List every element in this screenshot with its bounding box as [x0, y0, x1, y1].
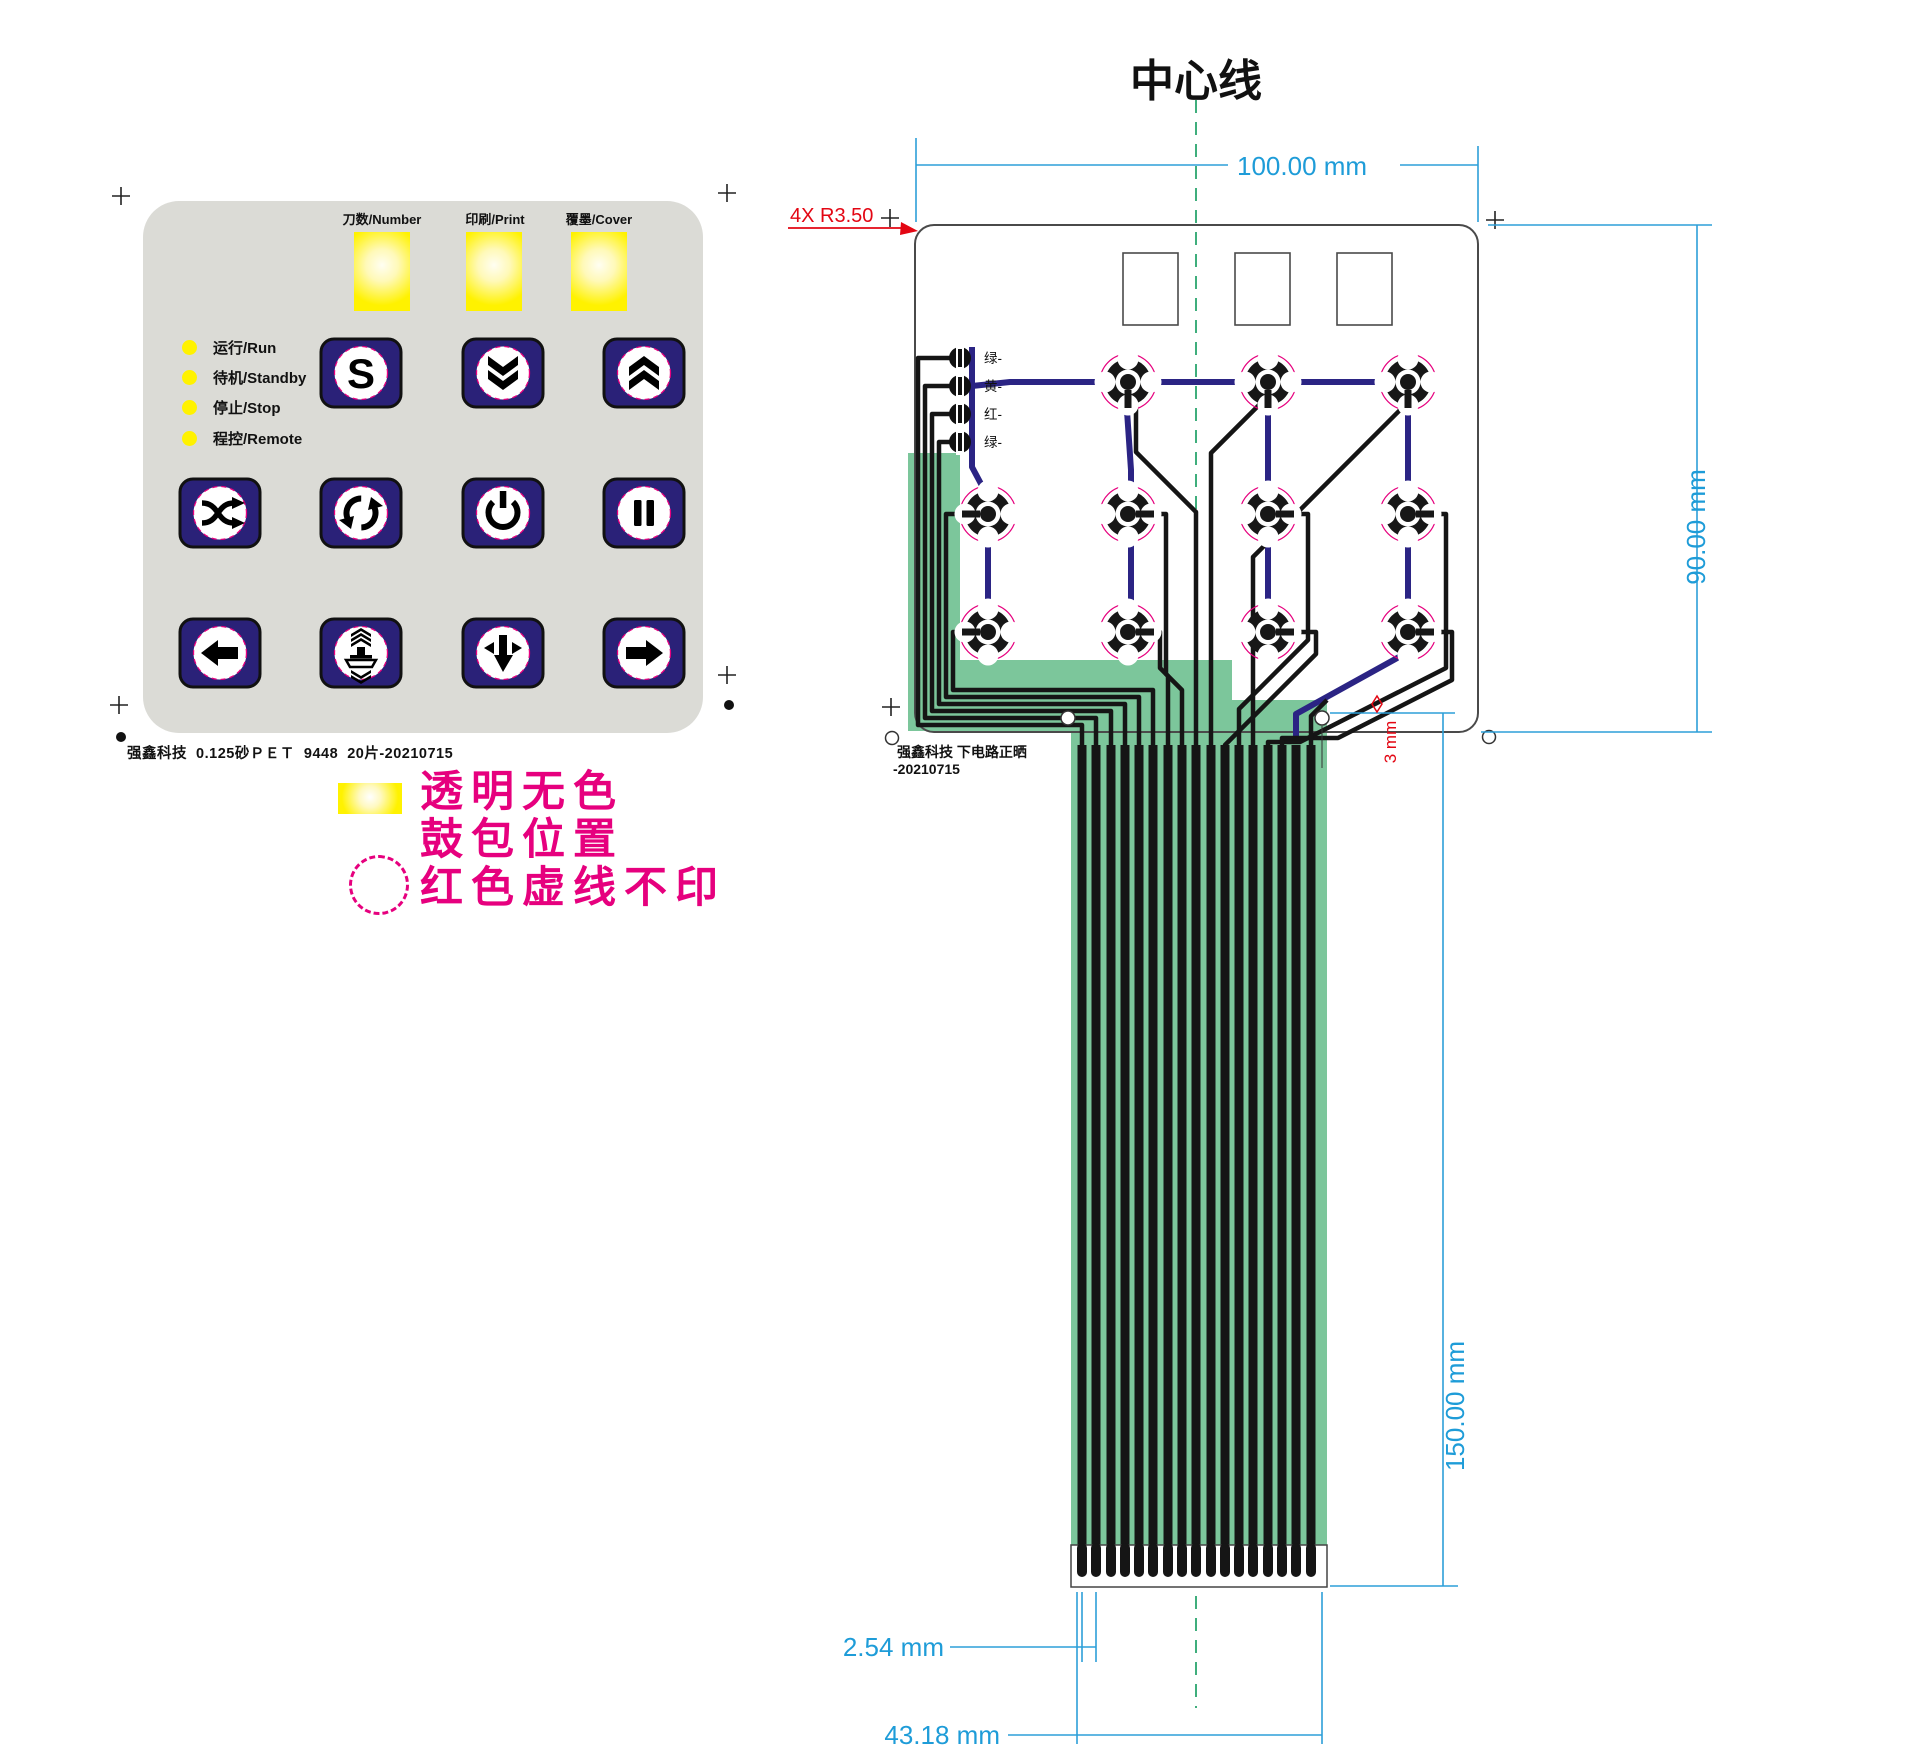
led-dot	[182, 340, 197, 355]
led-standby: 待机/Standby	[182, 367, 306, 387]
led-pad-labels: 绿- 黄- 红- 绿-	[984, 351, 1002, 450]
s-glyph: S	[347, 350, 375, 397]
led-label-green1: 绿-	[984, 351, 1002, 366]
board-note-line1: 强鑫科技 下电路正晒	[897, 744, 1027, 760]
led-run: 运行/Run	[182, 337, 276, 357]
display-window-print	[466, 232, 522, 311]
legend-line3: 红色虚线不印	[420, 865, 726, 911]
keypad-panel: 刀数/Number 印刷/Print 覆墨/Cover 运行/Run 待机/St…	[143, 201, 703, 733]
window-cutouts	[1123, 253, 1392, 325]
centerline-title: 中心线	[1130, 57, 1262, 106]
led-dot	[182, 431, 197, 446]
led-stop: 停止/Stop	[182, 397, 281, 417]
window-label-cover: 覆墨/Cover	[524, 209, 674, 228]
tail-hole-left	[1061, 711, 1075, 725]
button-arrow-left	[178, 617, 262, 689]
corner-radius-note: 4X R3.50	[790, 205, 873, 227]
dim-connector-label: 43.18 mm	[884, 1720, 1000, 1750]
led-dot	[182, 370, 197, 385]
membrane-keypad-drawing: { "panel": { "windows": [ {"label": "刀数/…	[0, 0, 1920, 1752]
tail-hole-right	[1315, 711, 1329, 725]
legend-line1: 透明无色	[420, 769, 624, 815]
led-label: 程控/Remote	[213, 428, 302, 449]
dim-pitch-label: 2.54 mm	[843, 1632, 944, 1662]
leader-arrow	[900, 222, 918, 235]
button-chevron-double-down	[461, 337, 545, 409]
led-label-yellow: 黄-	[984, 379, 1002, 394]
led-remote: 程控/Remote	[182, 428, 302, 448]
button-shuffle	[178, 477, 262, 549]
hole-size-note: 3 mm	[1381, 721, 1400, 764]
button-chevron-double-up	[602, 337, 686, 409]
legend-dashed-circle	[349, 855, 409, 915]
mark-circle-left	[886, 732, 899, 745]
led-label: 运行/Run	[213, 337, 276, 358]
mark-dot-left	[116, 732, 126, 742]
dim-width-label: 100.00 mm	[1237, 151, 1367, 181]
led-label-red: 红-	[984, 407, 1002, 422]
display-window-number	[354, 232, 410, 311]
button-power	[461, 477, 545, 549]
led-pads	[949, 345, 971, 455]
led-label: 停止/Stop	[213, 397, 281, 418]
window-cutout-2	[1235, 253, 1290, 325]
button-s: S	[319, 337, 403, 409]
led-dot	[182, 400, 197, 415]
window-cutout-3	[1337, 253, 1392, 325]
legend-line2: 鼓包位置	[420, 817, 624, 863]
mark-dot-right	[724, 700, 734, 710]
dim-tail-label: 150.00 mm	[1440, 1341, 1470, 1471]
panel-caption: 强鑫科技 0.125砂ＰＥＴ 9448 20片-20210715	[127, 742, 453, 763]
button-arrow-right	[602, 617, 686, 689]
led-label: 待机/Standby	[213, 367, 306, 388]
led-label-green2: 绿-	[984, 435, 1002, 450]
display-window-cover	[571, 232, 627, 311]
dim-height-label: 90.00 mm	[1681, 469, 1711, 585]
button-press	[319, 617, 403, 689]
button-feed-down	[461, 617, 545, 689]
legend-yellow-swatch	[338, 783, 402, 814]
board-note-line2: -20210715	[893, 761, 960, 777]
button-cycle	[319, 477, 403, 549]
button-pause	[602, 477, 686, 549]
window-cutout-1	[1123, 253, 1178, 325]
